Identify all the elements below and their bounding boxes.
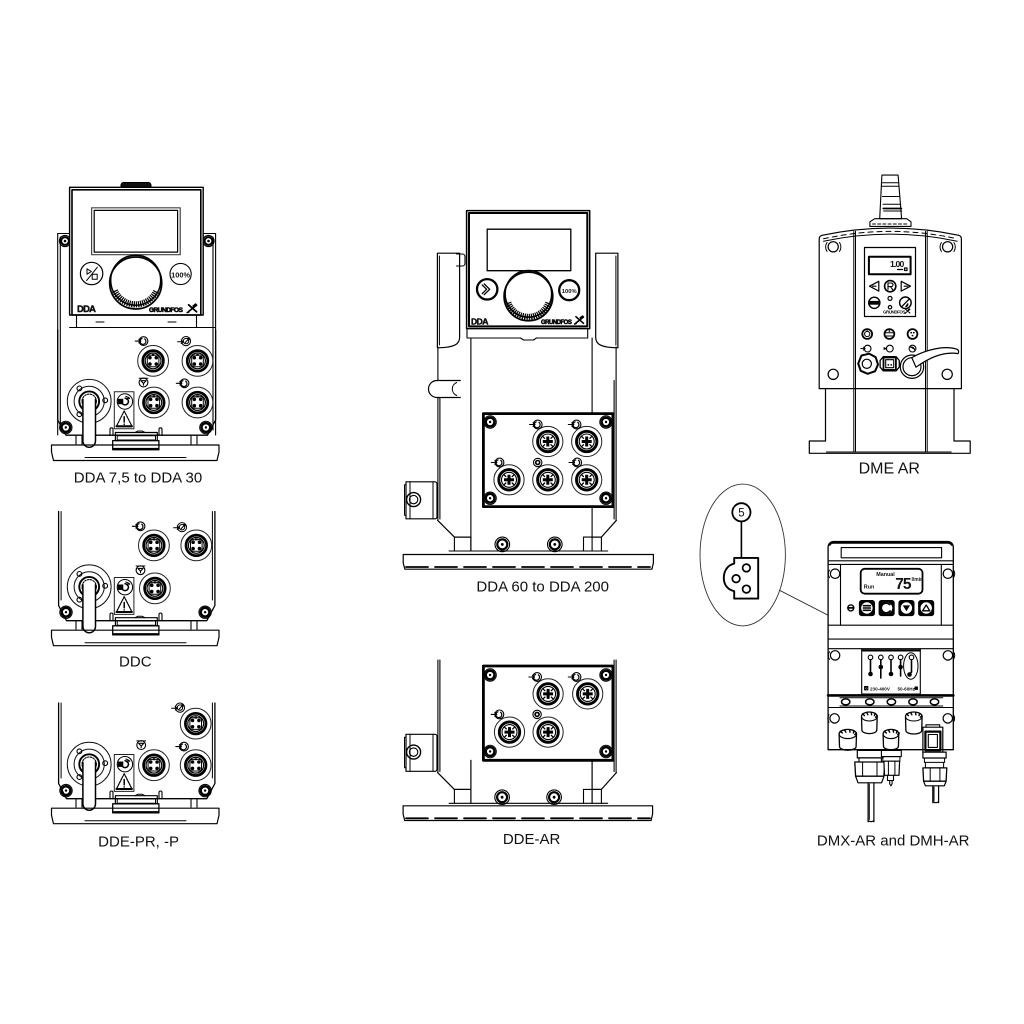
svg-text:GRUNDFOS: GRUNDFOS [149, 307, 183, 314]
svg-text:DME AR: DME AR [859, 461, 920, 478]
svg-text:DDA 7,5 to DDA 30: DDA 7,5 to DDA 30 [74, 470, 202, 487]
svg-text:GRUNDFOS: GRUNDFOS [883, 309, 905, 314]
svg-text:1.00: 1.00 [890, 259, 905, 269]
svg-text:Run: Run [864, 585, 874, 591]
svg-text:DDE-AR: DDE-AR [503, 831, 561, 848]
svg-text:50-60Hz: 50-60Hz [898, 686, 916, 691]
svg-text:DDA: DDA [77, 303, 96, 314]
svg-text:DDC: DDC [119, 654, 152, 671]
svg-text:5: 5 [738, 508, 744, 520]
svg-text:DDA: DDA [471, 317, 488, 327]
svg-text:100%: 100% [562, 289, 577, 295]
svg-text:100%: 100% [171, 270, 190, 279]
svg-text:DMX-AR and DMH-AR: DMX-AR and DMH-AR [817, 833, 970, 850]
svg-text:DDE-PR, -P: DDE-PR, -P [98, 834, 179, 851]
svg-text:DDA 60 to DDA 200: DDA 60 to DDA 200 [476, 579, 609, 596]
svg-text:75: 75 [895, 576, 912, 593]
svg-text:Manual: Manual [876, 572, 895, 578]
svg-text:GRUNDFOS: GRUNDFOS [541, 320, 572, 326]
svg-text:l/min: l/min [912, 577, 924, 583]
svg-text:230-400V: 230-400V [870, 686, 891, 691]
